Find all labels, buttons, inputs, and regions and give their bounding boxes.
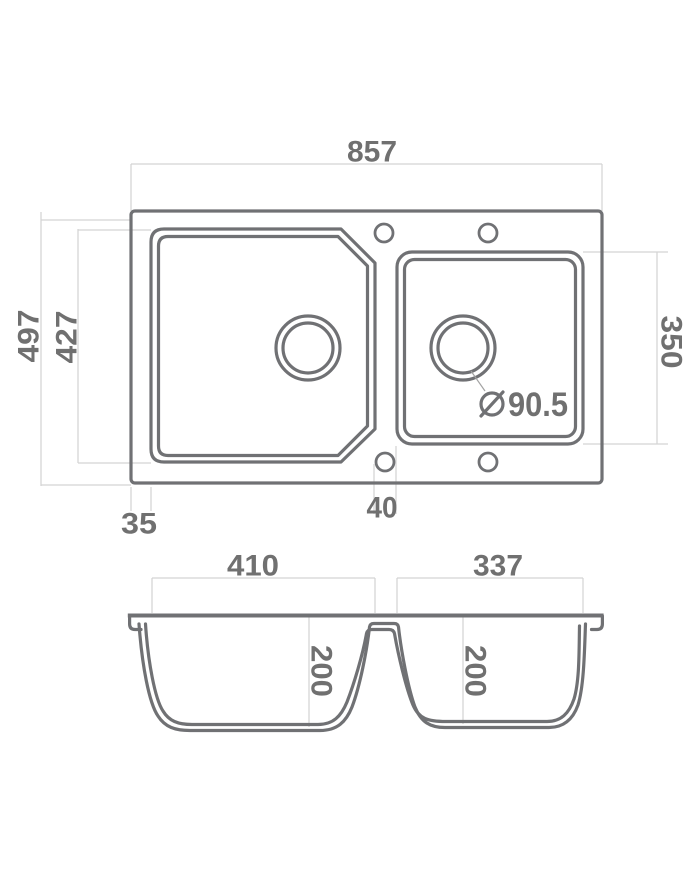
- right-bowl-depth-label: 350: [655, 316, 688, 369]
- drain-outer-circle: [276, 316, 340, 380]
- mounting-hole: [376, 453, 394, 471]
- left-drain: [276, 316, 340, 380]
- mounting-hole: [479, 453, 497, 471]
- drain-diameter-label: 90.5: [508, 386, 568, 424]
- top-view: 90.5 857 497 427 350 35 40: [13, 136, 688, 541]
- drain-inner-circle: [438, 323, 488, 373]
- main-bowl-depth-label: 427: [51, 311, 84, 364]
- left-bowl-width-label: 410: [227, 550, 279, 583]
- overall-width-label: 857: [347, 136, 397, 169]
- drain-outer-circle: [431, 316, 495, 380]
- section-view: 410 337 200 200: [128, 550, 604, 731]
- left-bowl-depth-label: 200: [305, 645, 338, 697]
- mounting-hole: [375, 224, 393, 242]
- divider-width-label: 40: [367, 492, 398, 525]
- mounting-hole: [479, 224, 497, 242]
- left-edge-offset-label: 35: [121, 508, 157, 541]
- right-bowl-width-label: 337: [473, 550, 523, 583]
- drain-inner-circle: [283, 323, 333, 373]
- drawing-canvas: 90.5 857 497 427 350 35 40: [0, 0, 700, 869]
- section-dimension-lines: [152, 578, 583, 727]
- bowl-section-outer-wall: [139, 624, 586, 731]
- right-bowl-depth-label: 200: [459, 645, 492, 697]
- diameter-symbol-icon: [481, 392, 503, 416]
- left-bowl-inner-outline: [159, 237, 368, 456]
- overall-depth-label: 497: [13, 310, 46, 363]
- sink-dimension-drawing: 90.5 857 497 427 350 35 40: [0, 0, 700, 869]
- right-rim-lip: [592, 616, 603, 630]
- right-drain: [431, 316, 495, 380]
